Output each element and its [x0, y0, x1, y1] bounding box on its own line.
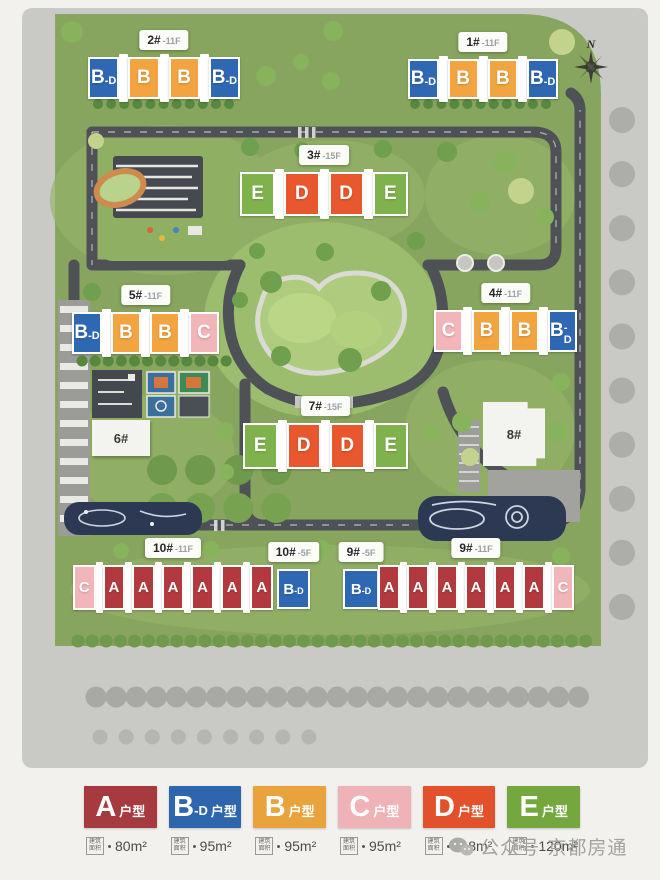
- compass-north-label: N: [572, 38, 610, 50]
- unit-letter: B: [119, 322, 133, 344]
- legend-swatch: B-D户型: [169, 786, 242, 828]
- building-id: 10#: [276, 545, 296, 559]
- unit-letter-suffix: -D: [424, 76, 436, 88]
- building-6: 6#: [92, 420, 150, 456]
- site-plan-page: N 2#-11F B-DBBB-D 1#-11F B-DBBB-D 3#-15F…: [0, 0, 660, 880]
- unit-row: AAAAAAC: [378, 565, 574, 610]
- unit-e: E: [240, 172, 275, 216]
- unit-letter: A: [500, 579, 511, 596]
- unit-letter: B: [530, 68, 544, 90]
- building-floors: -15F: [322, 151, 341, 161]
- legend-suffix: 户型: [458, 801, 484, 820]
- unit-a: A: [407, 565, 429, 610]
- wechat-icon: [448, 837, 474, 857]
- unit-a: A: [221, 565, 244, 610]
- unit-letter-suffix: -D: [544, 76, 556, 88]
- legend-swatch: A户型: [84, 786, 157, 828]
- unit-letter-suffix: -D: [564, 322, 575, 346]
- unit-letter: A: [442, 579, 453, 596]
- unit-a: A: [494, 565, 516, 610]
- unit-c: C: [73, 565, 96, 610]
- unit-row: B-DBBC: [72, 312, 219, 354]
- unit-b-d: B-D: [277, 569, 310, 609]
- building-label: 2#-11F: [139, 30, 188, 50]
- unit-d: D: [287, 423, 322, 469]
- building-id: 2#: [147, 33, 160, 47]
- building-id: 9#: [459, 541, 472, 555]
- unit-a: A: [465, 565, 487, 610]
- unit-letter: C: [442, 320, 456, 342]
- building-3: 3#-15F EDDE: [240, 172, 408, 216]
- unit-a: A: [191, 565, 214, 610]
- unit-row: B-D: [277, 569, 310, 609]
- unit-a: A: [132, 565, 155, 610]
- legend-item-b: B户型 建筑面积95m²: [253, 786, 326, 855]
- legend-letter: E: [520, 793, 539, 822]
- unit-a: A: [250, 565, 273, 610]
- building-floors: -5F: [362, 548, 376, 558]
- unit-letter-suffix: -D: [294, 586, 304, 596]
- dot-icon: [193, 845, 196, 848]
- legend-area: 建筑面积95m²: [338, 837, 411, 855]
- unit-row: B-D: [343, 569, 379, 609]
- dot-icon: [362, 845, 365, 848]
- unit-letter-suffix: -D: [225, 75, 237, 87]
- unit-b-d: B-D: [527, 59, 558, 99]
- building-1: 1#-11F B-DBBB-D: [408, 59, 558, 99]
- unit-b: B: [150, 312, 180, 354]
- building-label: 10#-5F: [268, 542, 320, 562]
- unit-letter: C: [197, 322, 211, 344]
- building-floors: -15F: [324, 402, 343, 412]
- building-id: 3#: [307, 148, 320, 162]
- area-tag: 建筑面积: [255, 837, 273, 855]
- unit-letter: B: [456, 68, 470, 90]
- legend-area: 建筑面积80m²: [84, 837, 157, 855]
- building-8: 8#: [483, 402, 545, 466]
- unit-letter: E: [254, 435, 267, 457]
- legend-letter: C: [349, 793, 370, 822]
- unit-letter: B: [91, 67, 105, 89]
- unit-letter: A: [108, 579, 119, 596]
- unit-letter: D: [340, 435, 354, 457]
- unit-letter: A: [227, 579, 238, 596]
- building-10-5f: 10#-5F B-D: [277, 569, 310, 609]
- unit-letter: E: [384, 183, 397, 205]
- area-value: 95m²: [369, 838, 401, 854]
- building-label: 9#-11F: [451, 538, 500, 558]
- unit-letter: E: [251, 183, 264, 205]
- legend-item-c: C户型 建筑面积95m²: [338, 786, 411, 855]
- compass-rose-icon: [574, 50, 608, 84]
- legend-letter: B: [265, 793, 286, 822]
- building-id: 10#: [153, 541, 173, 555]
- unit-row: CAAAAAA: [73, 565, 273, 610]
- unit-c: C: [434, 310, 463, 352]
- legend-item-bd: B-D户型 建筑面积95m²: [169, 786, 242, 855]
- legend-swatch: E户型: [507, 786, 580, 828]
- building-10-11f: 10#-11F CAAAAAA: [73, 565, 273, 610]
- unit-letter-suffix: -D: [362, 586, 372, 596]
- building-id: 6#: [114, 431, 128, 446]
- building-id: 1#: [466, 35, 479, 49]
- unit-c: C: [552, 565, 574, 610]
- unit-letter: D: [297, 435, 311, 457]
- unit-e: E: [374, 423, 409, 469]
- unit-b: B: [472, 310, 501, 352]
- unit-letter: B: [411, 68, 425, 90]
- unit-letter: B: [137, 67, 151, 89]
- legend-suffix: 户型: [119, 801, 145, 820]
- building-id: 4#: [489, 286, 502, 300]
- area-tag: 建筑面积: [171, 837, 189, 855]
- legend-letter-sub: -D: [194, 803, 208, 818]
- area-tag: 建筑面积: [86, 837, 104, 855]
- unit-letter: E: [384, 435, 397, 457]
- area-tag: 建筑面积: [340, 837, 358, 855]
- unit-letter: C: [79, 579, 90, 596]
- building-floors: -11F: [475, 544, 493, 554]
- compass: N: [572, 38, 610, 89]
- unit-letter: D: [339, 183, 353, 205]
- unit-letter: A: [197, 579, 208, 596]
- building-5: 5#-11F B-DBBC: [72, 312, 219, 354]
- building-floors: -11F: [482, 38, 500, 48]
- building-9-11f: 9#-11F AAAAAAC: [378, 565, 574, 610]
- building-id: 9#: [347, 545, 360, 559]
- unit-b: B: [169, 57, 200, 99]
- building-label: 7#-15F: [301, 396, 351, 416]
- unit-letter: B: [158, 322, 172, 344]
- unit-letter-suffix: -D: [105, 75, 117, 87]
- area-tag: 建筑面积: [425, 837, 443, 855]
- legend-suffix: 户型: [289, 801, 315, 820]
- building-id: 8#: [507, 427, 521, 442]
- legend-item-a: A户型 建筑面积80m²: [84, 786, 157, 855]
- unit-d: D: [284, 172, 319, 216]
- unit-letter: A: [168, 579, 179, 596]
- unit-b: B: [488, 59, 519, 99]
- legend-letter: A: [95, 793, 116, 822]
- unit-row: B-DBBB-D: [88, 57, 240, 99]
- building-floors: -11F: [163, 36, 181, 46]
- unit-row: CBBB-D: [434, 310, 577, 352]
- unit-letter: B: [177, 67, 191, 89]
- unit-letter: B: [283, 581, 294, 598]
- unit-a: A: [378, 565, 400, 610]
- unit-b-d: B-D: [72, 312, 102, 354]
- legend-area: 建筑面积95m²: [169, 837, 242, 855]
- unit-a: A: [523, 565, 545, 610]
- unit-a: A: [103, 565, 126, 610]
- building-9-5f: 9#-5F B-D: [343, 569, 379, 609]
- unit-letter: B: [518, 320, 532, 342]
- watermark-text: 公众号·京都房通: [480, 833, 627, 860]
- unit-a: A: [436, 565, 458, 610]
- building-id: 5#: [129, 288, 142, 302]
- unit-letter: A: [138, 579, 149, 596]
- unit-c: C: [189, 312, 219, 354]
- building-2: 2#-11F B-DBBB-D: [88, 57, 240, 99]
- building-id: 7#: [309, 399, 322, 413]
- unit-letter: B: [351, 581, 362, 598]
- unit-letter: A: [256, 579, 267, 596]
- building-label: 9#-5F: [339, 542, 384, 562]
- legend-suffix: 户型: [542, 801, 568, 820]
- unit-letter: B: [496, 68, 510, 90]
- area-value: 95m²: [284, 838, 316, 854]
- unit-row: EDDE: [240, 172, 408, 216]
- area-value: 80m²: [115, 838, 147, 854]
- building-floors: -11F: [175, 544, 193, 554]
- unit-letter: B: [212, 67, 226, 89]
- watermark: 公众号·京都房通: [448, 833, 627, 860]
- building-label: 1#-11F: [458, 32, 507, 52]
- unit-letter: A: [413, 579, 424, 596]
- unit-letter: A: [471, 579, 482, 596]
- unit-b-d: B-D: [88, 57, 119, 99]
- unit-b: B: [510, 310, 539, 352]
- unit-d: D: [330, 423, 365, 469]
- unit-e: E: [243, 423, 278, 469]
- dot-icon: [277, 845, 280, 848]
- legend-swatch: C户型: [338, 786, 411, 828]
- legend-suffix: 户型: [373, 801, 399, 820]
- unit-row: B-DBBB-D: [408, 59, 558, 99]
- unit-row: EDDE: [243, 423, 408, 469]
- unit-letter: A: [384, 579, 395, 596]
- building-floors: -11F: [504, 289, 522, 299]
- unit-letter: B: [550, 320, 564, 342]
- unit-d: D: [329, 172, 364, 216]
- unit-letter: A: [529, 579, 540, 596]
- unit-b-d: B-D: [343, 569, 379, 609]
- building-floors: -5F: [298, 548, 312, 558]
- unit-letter: B: [74, 322, 88, 344]
- unit-b: B: [111, 312, 141, 354]
- unit-letter: B: [480, 320, 494, 342]
- unit-b-d: B-D: [209, 57, 240, 99]
- area-value: 95m²: [200, 838, 232, 854]
- building-label: 4#-11F: [481, 283, 530, 303]
- unit-letter: D: [295, 183, 309, 205]
- unit-letter-suffix: -D: [88, 330, 100, 342]
- building-label: 3#-15F: [299, 145, 349, 165]
- dot-icon: [108, 845, 111, 848]
- legend-letter: D: [434, 793, 455, 822]
- unit-b: B: [448, 59, 479, 99]
- building-7: 7#-15F EDDE: [243, 423, 408, 469]
- building-label: 5#-11F: [121, 285, 170, 305]
- building-floors: -11F: [144, 291, 162, 301]
- unit-letter: C: [558, 579, 569, 596]
- unit-b-d: B-D: [408, 59, 439, 99]
- legend-letter: B: [173, 793, 194, 822]
- unit-b: B: [128, 57, 159, 99]
- unit-b-d: B-D: [548, 310, 577, 352]
- legend-area: 建筑面积95m²: [253, 837, 326, 855]
- unit-a: A: [162, 565, 185, 610]
- unit-e: E: [373, 172, 408, 216]
- building-label: 10#-11F: [145, 538, 201, 558]
- legend-swatch: B户型: [253, 786, 326, 828]
- legend-swatch: D户型: [423, 786, 496, 828]
- legend-suffix: 户型: [211, 801, 237, 820]
- building-4: 4#-11F CBBB-D: [434, 310, 577, 352]
